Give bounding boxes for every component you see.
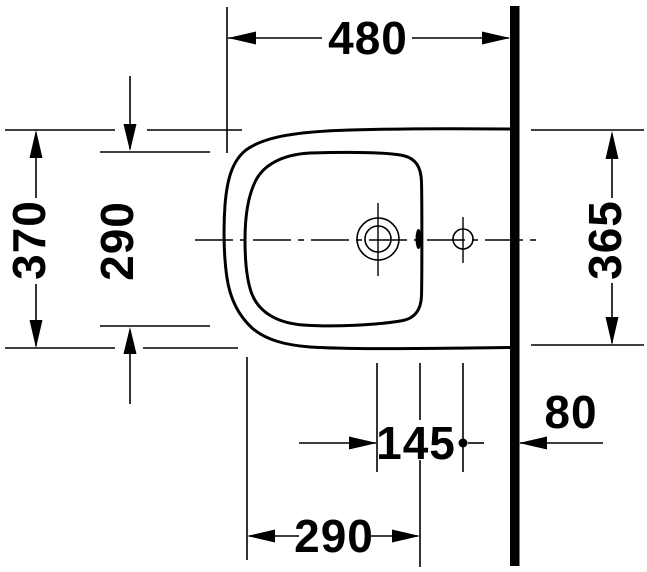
dim-label-tap-to-outlet: 145 bbox=[376, 417, 456, 469]
arrowhead-left bbox=[519, 437, 547, 450]
arrowhead-up bbox=[606, 131, 619, 159]
dim-label-overall-width: 480 bbox=[328, 12, 408, 64]
drawing-page: 480 370 290 bbox=[0, 0, 647, 572]
dimension-outlet-to-wall: 80 bbox=[519, 386, 603, 449]
dimension-basin-depth: 290 bbox=[91, 76, 210, 404]
dim-label-outlet-to-wall: 80 bbox=[544, 386, 597, 438]
arrowhead-right bbox=[392, 530, 420, 543]
dim-label-basin-depth: 290 bbox=[91, 201, 143, 281]
overflow-slot-mark bbox=[416, 229, 422, 249]
arrowhead-left bbox=[228, 32, 256, 45]
dimension-tap-to-outlet: 145 bbox=[299, 417, 484, 469]
arrowhead-right bbox=[482, 32, 510, 45]
dimension-dot-terminator bbox=[459, 439, 468, 448]
bidet-outer-outline bbox=[224, 129, 510, 349]
wall-line bbox=[510, 6, 520, 566]
bidet-body bbox=[195, 129, 538, 349]
dimension-depth-at-wall: 365 bbox=[531, 130, 644, 345]
arrowhead-down bbox=[606, 317, 619, 345]
dim-label-depth-at-wall: 365 bbox=[579, 200, 631, 280]
arrowhead-up bbox=[30, 130, 43, 158]
dimension-front-to-outlet: 290 bbox=[247, 510, 420, 562]
bidet-basin-outline bbox=[245, 152, 422, 325]
arrowhead-down bbox=[30, 320, 43, 348]
dimension-overall-width: 480 bbox=[227, 7, 510, 153]
arrowhead-right bbox=[349, 437, 377, 450]
arrowhead-left bbox=[247, 530, 275, 543]
dim-label-front-to-outlet: 290 bbox=[294, 510, 374, 562]
bidet-technical-drawing: 480 370 290 bbox=[0, 0, 647, 572]
dim-label-overall-depth: 370 bbox=[3, 200, 55, 280]
arrowhead-down bbox=[124, 124, 137, 151]
arrowhead-up bbox=[124, 327, 137, 354]
